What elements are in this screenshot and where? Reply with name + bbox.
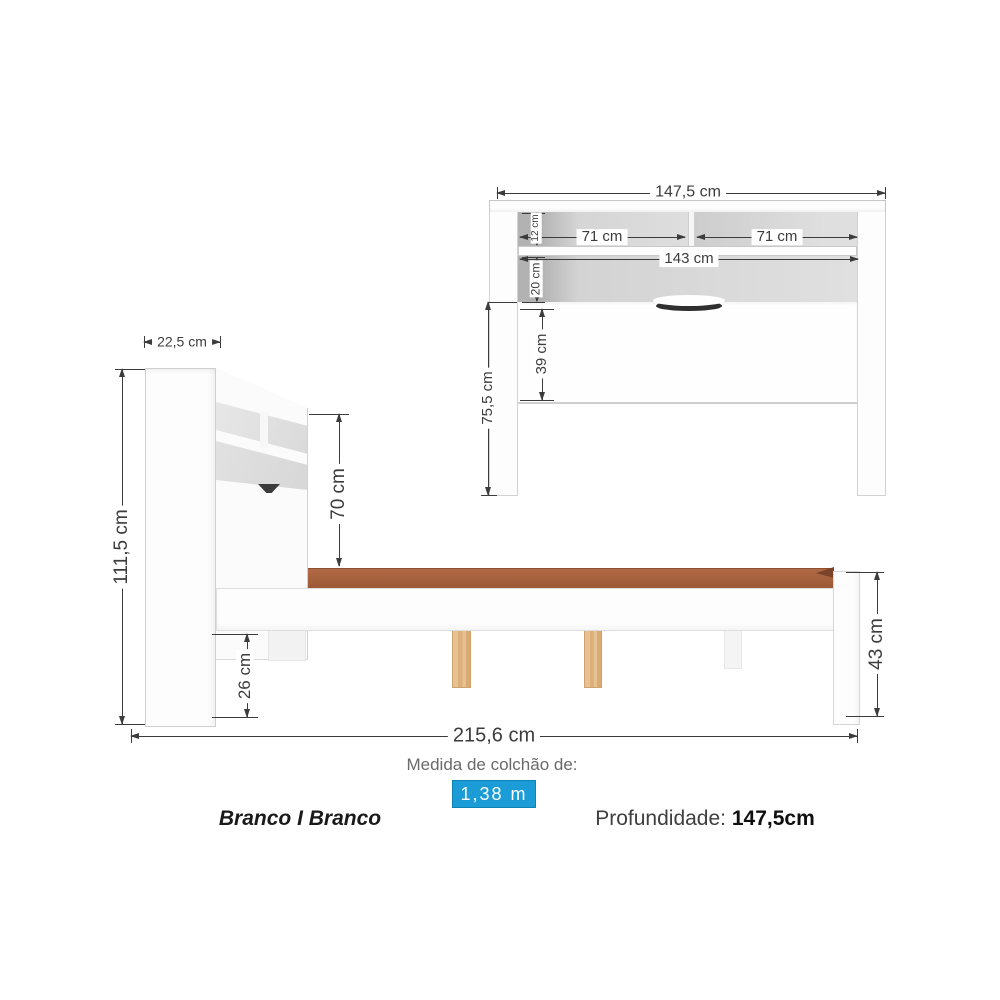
dim-tick: [520, 309, 554, 310]
dim-niche-height-label: 20 cm: [530, 261, 543, 298]
dim-shelf-right-label: 71 cm: [752, 229, 803, 245]
shelf-unit-divider: [260, 412, 268, 448]
wood-center-leg-1: [452, 631, 471, 688]
dim-tick: [522, 302, 545, 303]
mattress-platform: [308, 568, 834, 588]
headboard-handle-icon: [656, 300, 722, 311]
dim-shelf-left-label: 71 cm: [577, 229, 628, 245]
dim-headboard-above-base-label: 70 cm: [329, 464, 349, 524]
side-rail: [216, 588, 847, 631]
mattress-size-badge: 1,38 m: [452, 780, 536, 808]
dim-front-total-width-label: 147,5 cm: [650, 185, 726, 202]
shelf-unit-handle-icon: [258, 484, 280, 493]
wood-center-leg-2: [584, 631, 602, 688]
headboard-right-leg: [857, 212, 886, 496]
headboard-shelf-divider: [688, 212, 695, 246]
depth-label: Profundidade:: [595, 807, 726, 830]
finish-label: Branco I Branco: [195, 807, 405, 831]
dim-tick: [520, 400, 554, 401]
dim-tick: [212, 634, 258, 635]
dim-total-length-label: 215,6 cm: [448, 726, 540, 747]
depth-text: Profundidade: 147,5cm: [560, 807, 850, 831]
dim-total-height-label: 111,5 cm: [112, 505, 132, 588]
dim-tick: [212, 717, 258, 718]
headboard-left-leg: [489, 212, 518, 496]
dim-inner-width-label: 143 cm: [659, 251, 718, 267]
dim-top-shelf-height-label: 12 cm: [531, 212, 542, 243]
dim-leg-height-label: 75,5 cm: [480, 367, 496, 428]
dim-footboard-height-label: 43 cm: [867, 614, 887, 674]
dim-tick: [488, 302, 517, 303]
bed-dimension-diagram: 147,5 cm 71 cm 71 cm 143 cm 12 cm 20 cm …: [0, 0, 1000, 1000]
support-leg-rear: [268, 631, 306, 661]
headboard-front-panel: [518, 302, 857, 404]
headboard-column: [145, 368, 216, 727]
depth-value: 147,5cm: [732, 807, 815, 830]
dim-clearance-label: 26 cm: [236, 649, 254, 703]
support-leg-mid: [724, 631, 742, 669]
dim-headboard-depth-label: 22,5 cm: [152, 335, 212, 350]
dim-tick: [309, 414, 349, 415]
dim-panel-height-label: 39 cm: [534, 330, 550, 379]
mattress-size-label: Medida de colchão de:: [330, 755, 654, 775]
footboard-leg: [833, 571, 860, 725]
